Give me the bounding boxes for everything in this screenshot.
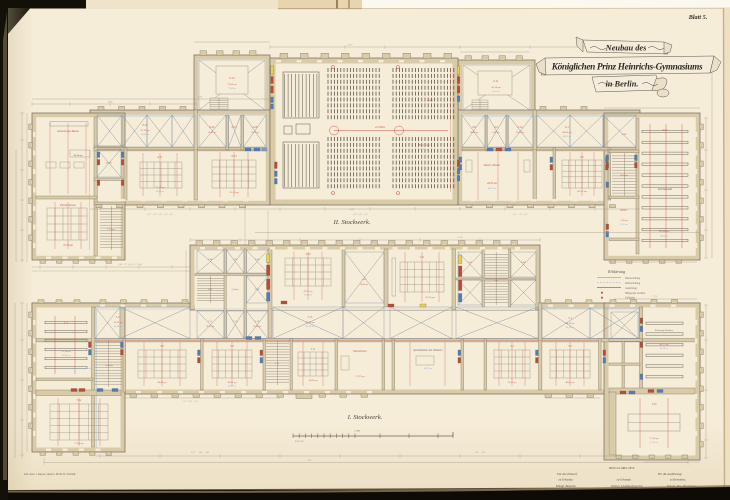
- svg-text:6,52 cm: 6,52 cm: [621, 224, 628, 226]
- svg-text:12,85 qm: 12,85 qm: [251, 132, 260, 134]
- svg-text:6.26: 6.26: [210, 126, 215, 129]
- svg-text:14,04qm: 14,04qm: [105, 364, 114, 367]
- svg-text:77,40 cm: 77,40 cm: [228, 87, 237, 90]
- svg-text:26,54 cm: 26,54 cm: [114, 325, 122, 328]
- svg-text:44,20 cm: 44,20 cm: [660, 347, 668, 350]
- svg-text:10,40 qm: 10,40 qm: [206, 325, 215, 328]
- svg-text:10,40 qm: 10,40 qm: [516, 131, 525, 134]
- svg-text:4,47 7,44 2,44: 4,47 7,44 2,44: [191, 451, 210, 454]
- svg-text:10,40 qm: 10,40 qm: [208, 131, 217, 134]
- svg-text:6.13: 6.13: [229, 76, 235, 80]
- svg-text:30,10 qm: 30,10 qm: [114, 321, 123, 324]
- svg-text:12,46: 12,46: [457, 236, 463, 239]
- svg-text:27,07 qm: 27,07 qm: [356, 375, 365, 378]
- svg-text:Gasleitung: Gasleitung: [625, 287, 637, 290]
- svg-text:41,07: 41,07: [347, 44, 353, 47]
- svg-text:6.28: 6.28: [253, 126, 258, 129]
- svg-text:Blatt 5.: Blatt 5.: [688, 14, 708, 21]
- svg-text:Wärmeleitung: Wärmeleitung: [625, 282, 641, 285]
- svg-text:85,74 cm: 85,74 cm: [306, 325, 314, 328]
- svg-text:zu Urkunde.: zu Urkunde.: [616, 478, 632, 482]
- svg-text:7,44 4,47: 7,44 4,47: [475, 451, 487, 454]
- svg-text:Sprechzimmer des Direktors: Sprechzimmer des Direktors: [413, 349, 442, 352]
- svg-text:II. Stockwerk.: II. Stockwerk.: [333, 219, 371, 226]
- svg-text:1,70 5,97 1,70: 1,70 5,97 1,70: [353, 214, 369, 216]
- svg-text:16,90 qm: 16,90 qm: [360, 284, 369, 286]
- svg-text:zu Kenntniss.: zu Kenntniss.: [669, 478, 686, 482]
- svg-text:44,10 qm: 44,10 qm: [566, 322, 575, 325]
- svg-text:55,36 cm: 55,36 cm: [492, 91, 501, 93]
- svg-text:46,95 qm: 46,95 qm: [487, 182, 497, 185]
- svg-text:Wartezimmer: Wartezimmer: [353, 350, 368, 353]
- svg-text:Wasserleitung: Wasserleitung: [625, 277, 641, 280]
- svg-text:5.22: 5.22: [77, 399, 82, 402]
- svg-text:Berlin im März 1874.: Berlin im März 1874.: [609, 466, 635, 470]
- svg-text:2,37 4,97 1,70: 2,37 4,97 1,70: [183, 400, 199, 403]
- svg-text:50,46 cm: 50,46 cm: [62, 354, 70, 357]
- svg-text:53,54 qm: 53,54 qm: [62, 350, 71, 353]
- svg-text:6.29: 6.29: [142, 123, 148, 127]
- svg-text:5.41: 5.41: [420, 256, 425, 259]
- svg-text:Für die Ausführung:: Für die Ausführung:: [657, 472, 683, 476]
- svg-text:19,04 cm: 19,04 cm: [141, 133, 150, 136]
- svg-text:5.21: 5.21: [64, 322, 69, 325]
- svg-text:Geländer: Geländer: [625, 297, 636, 300]
- svg-text:Hängende Gerüste: Hängende Gerüste: [624, 292, 646, 295]
- svg-text:Lith. Anst. v. Kayser, Quarre,: Lith. Anst. v. Kayser, Quarre, Berlin W.…: [23, 473, 76, 476]
- svg-text:Königl. Baurath.: Königl. Baurath.: [555, 484, 577, 488]
- svg-text:1:200: 1:200: [354, 430, 360, 433]
- svg-text:30,60 qm: 30,60 qm: [309, 379, 318, 382]
- svg-text:Für den Entwurf: Für den Entwurf: [556, 472, 578, 476]
- svg-text:40,20 cm: 40,20 cm: [563, 135, 572, 138]
- svg-text:8,96 qm: 8,96 qm: [492, 132, 500, 134]
- svg-text:27,74 qm: 27,74 qm: [649, 437, 659, 440]
- svg-text:44,70 cm: 44,70 cm: [424, 367, 432, 370]
- svg-text:5.45: 5.45: [468, 261, 473, 264]
- svg-text:5.11: 5.11: [311, 348, 316, 351]
- svg-text:48,12 qm: 48,12 qm: [660, 343, 669, 346]
- svg-text:41 Plätze: 41 Plätze: [375, 126, 386, 129]
- svg-text:44,66 qm: 44,66 qm: [562, 131, 572, 134]
- svg-text:Neubau des: Neubau des: [605, 44, 647, 53]
- svg-text:zu Urkunde:: zu Urkunde:: [558, 478, 574, 482]
- svg-text:54,10 qm: 54,10 qm: [74, 154, 83, 157]
- svg-text:40,74 cm: 40,74 cm: [566, 326, 574, 329]
- svg-text:10,40 qm: 10,40 qm: [253, 325, 262, 328]
- svg-text:5.15: 5.15: [308, 316, 313, 319]
- svg-text:365,10 qm: 365,10 qm: [418, 144, 429, 147]
- svg-text:6.11: 6.11: [493, 79, 499, 83]
- svg-text:14,04qm: 14,04qm: [620, 174, 629, 177]
- svg-text:14,06: 14,06: [107, 101, 113, 104]
- svg-text:79,60 qm: 79,60 qm: [227, 83, 237, 86]
- svg-text:6.23: 6.23: [231, 154, 237, 158]
- svg-text:5.17: 5.17: [116, 316, 121, 319]
- svg-text:354,60 cm: 354,60 cm: [419, 148, 429, 151]
- svg-text:5.40: 5.40: [306, 253, 311, 256]
- svg-text:50,25 qm: 50,25 qm: [425, 296, 435, 299]
- svg-text:Zeichensaal: Zeichensaal: [658, 187, 672, 191]
- svg-text:7,56 qm: 7,56 qm: [620, 219, 628, 222]
- svg-text:6.1: 6.1: [565, 125, 569, 129]
- svg-text:6.2: 6.2: [580, 155, 584, 159]
- svg-text:5.44: 5.44: [521, 261, 526, 264]
- svg-text:Wohnung-Direktor: Wohnung-Direktor: [655, 329, 674, 332]
- svg-text:93,10 qm: 93,10 qm: [306, 321, 315, 324]
- svg-text:10,40 qm: 10,40 qm: [470, 131, 479, 134]
- svg-text:6.60: 6.60: [622, 133, 627, 136]
- svg-text:7,10 qm: 7,10 qm: [107, 228, 115, 231]
- svg-text:I. Stockwerk.: I. Stockwerk.: [347, 414, 383, 421]
- svg-text:5.46: 5.46: [255, 258, 260, 261]
- svg-text:5 4 3 2 1 0: 5 4 3 2 1 0: [295, 440, 304, 443]
- svg-text:6.75: 6.75: [106, 161, 112, 165]
- svg-text:Erklärung: Erklärung: [607, 269, 625, 274]
- svg-text:3,97 1,70 5,97 1,70 3,: 3,97 1,70 5,97 1,70 3,97: [147, 214, 174, 216]
- svg-text:36,07 cm: 36,07 cm: [228, 386, 236, 388]
- svg-text:Keller:: Keller:: [619, 209, 628, 212]
- svg-text:98,44 cm: 98,44 cm: [660, 235, 669, 238]
- svg-text:Aula: Aula: [426, 98, 433, 102]
- svg-text:in Berlin.: in Berlin.: [605, 80, 638, 89]
- svg-text:6.27: 6.27: [232, 126, 237, 129]
- svg-text:44,92 cm: 44,92 cm: [488, 187, 497, 190]
- svg-text:5,10qm: 5,10qm: [232, 289, 239, 291]
- svg-text:6.21: 6.21: [157, 155, 163, 159]
- svg-text:23,70 qm: 23,70 qm: [140, 129, 150, 132]
- svg-text:6.61: 6.61: [662, 128, 668, 132]
- svg-text:Königlichen Prinz Heinrichs-Gy: Königlichen Prinz Heinrichs-Gymnasiums: [551, 63, 703, 73]
- svg-text:79,74 cm: 79,74 cm: [304, 294, 312, 297]
- svg-text:58,10 qm: 58,10 qm: [491, 86, 501, 89]
- svg-text:Sammlungs-Raum: Sammlungs-Raum: [57, 129, 80, 133]
- svg-text:25,10 cm: 25,10 cm: [650, 442, 658, 444]
- svg-text:5.42: 5.42: [362, 278, 367, 281]
- svg-text:5,97 1,70 3,97: 5,97 1,70 3,97: [513, 214, 529, 216]
- svg-text:5.50: 5.50: [652, 403, 657, 406]
- svg-text:6.10: 6.10: [518, 126, 523, 129]
- svg-text:5.44: 5.44: [208, 258, 213, 261]
